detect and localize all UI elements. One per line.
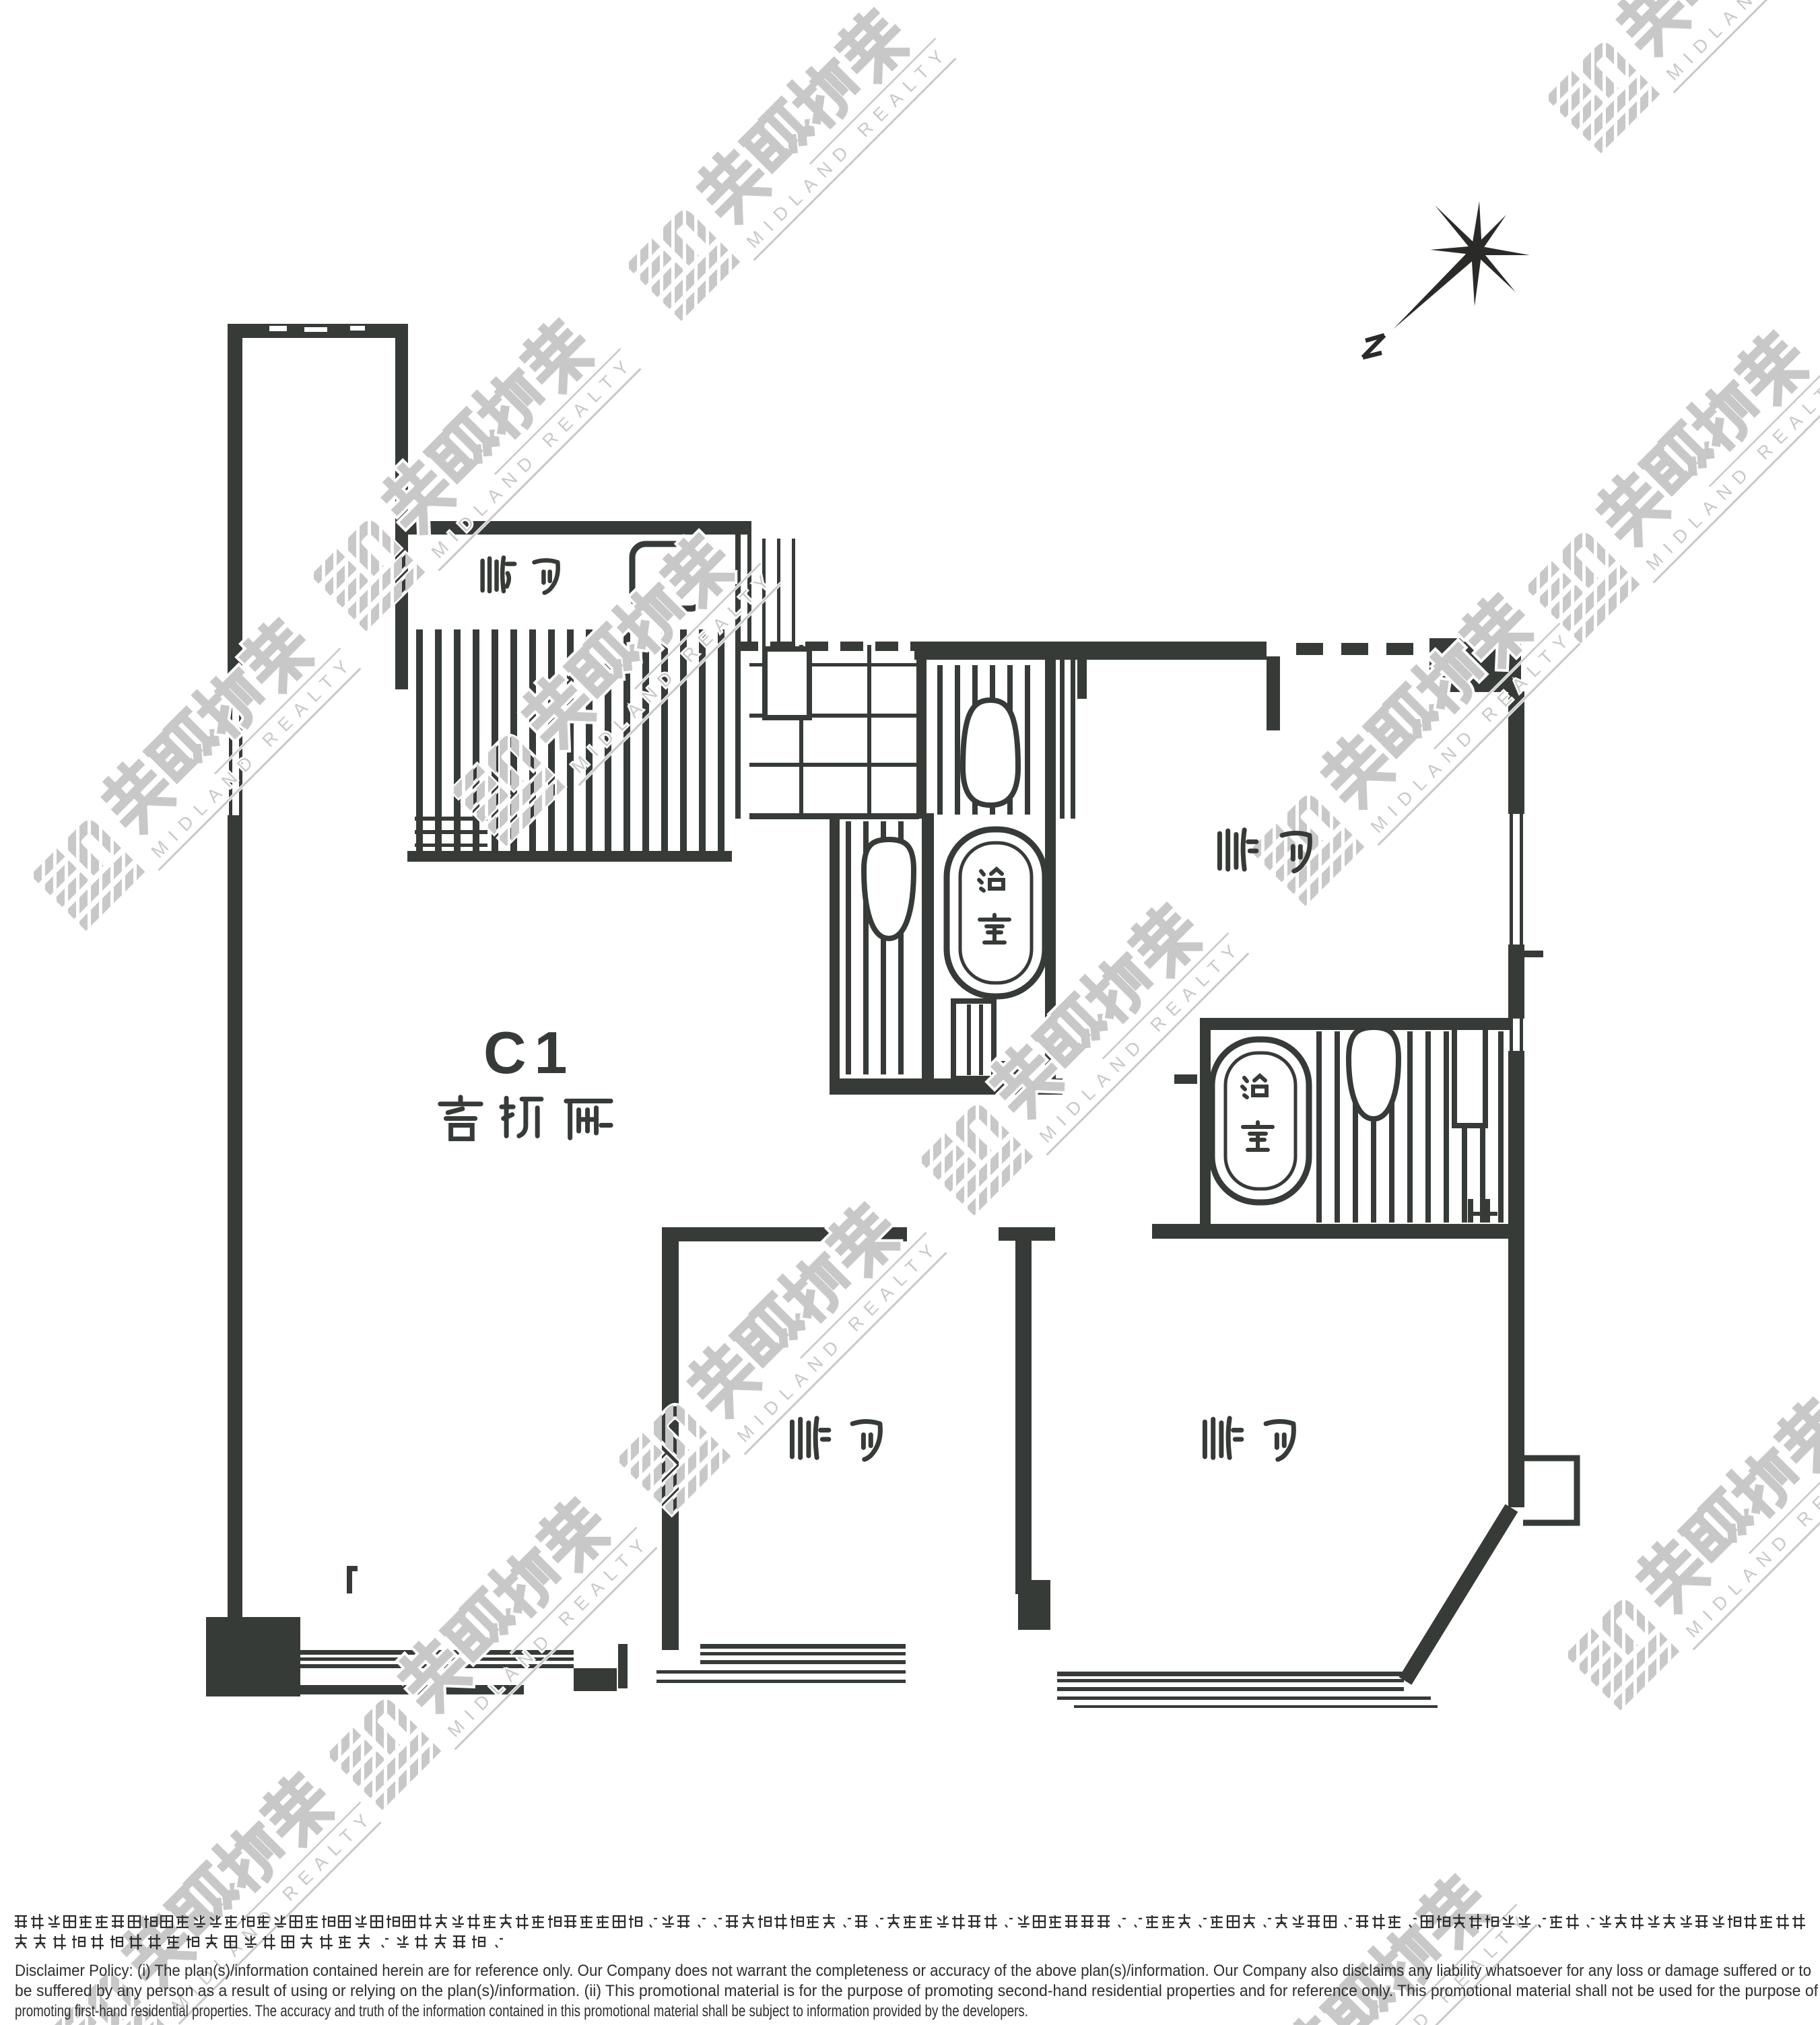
- svg-text:promoting first-hand residenti: promoting first-hand residential propert…: [15, 2002, 1028, 2020]
- svg-text:be suffered by any person as a: be suffered by any person as a result of…: [15, 1982, 1818, 2000]
- svg-text:C1: C1: [483, 1019, 576, 1086]
- svg-text:Disclaimer Policy: (i) The pla: Disclaimer Policy: (i) The plan(s)/infor…: [15, 1962, 1811, 1980]
